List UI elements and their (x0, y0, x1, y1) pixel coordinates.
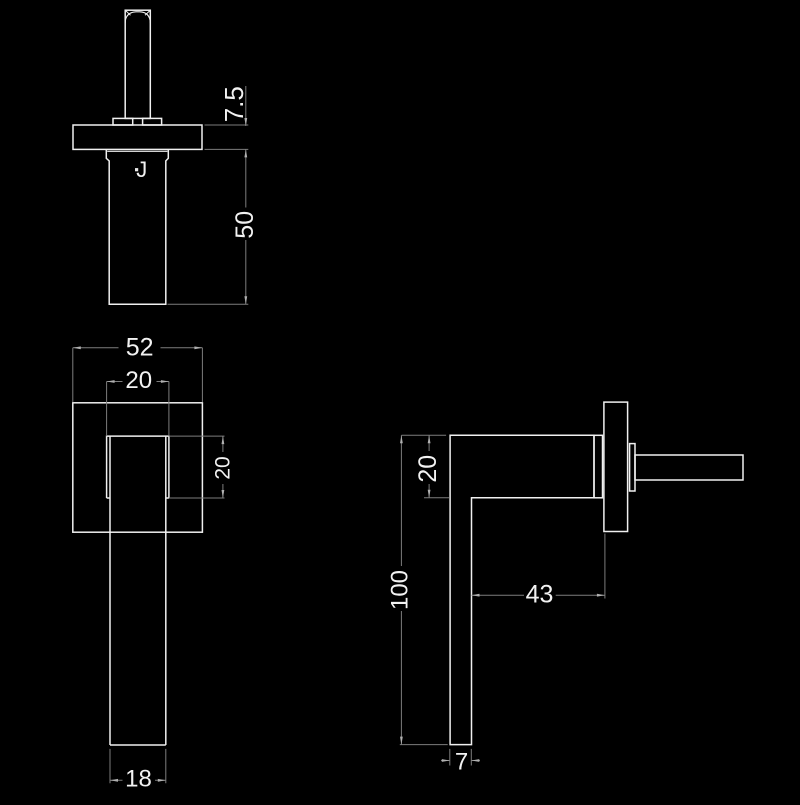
svg-text:52: 52 (126, 333, 154, 361)
svg-text:20: 20 (414, 455, 442, 483)
svg-text:43: 43 (526, 580, 554, 608)
svg-text:20: 20 (211, 456, 234, 479)
svg-text:7: 7 (455, 749, 468, 776)
svg-text:20: 20 (125, 367, 152, 394)
svg-text:J: J (136, 157, 147, 182)
svg-text:50: 50 (231, 211, 259, 239)
svg-text:7.5: 7.5 (219, 86, 249, 122)
svg-text:18: 18 (125, 765, 152, 792)
svg-text:100: 100 (387, 570, 414, 610)
